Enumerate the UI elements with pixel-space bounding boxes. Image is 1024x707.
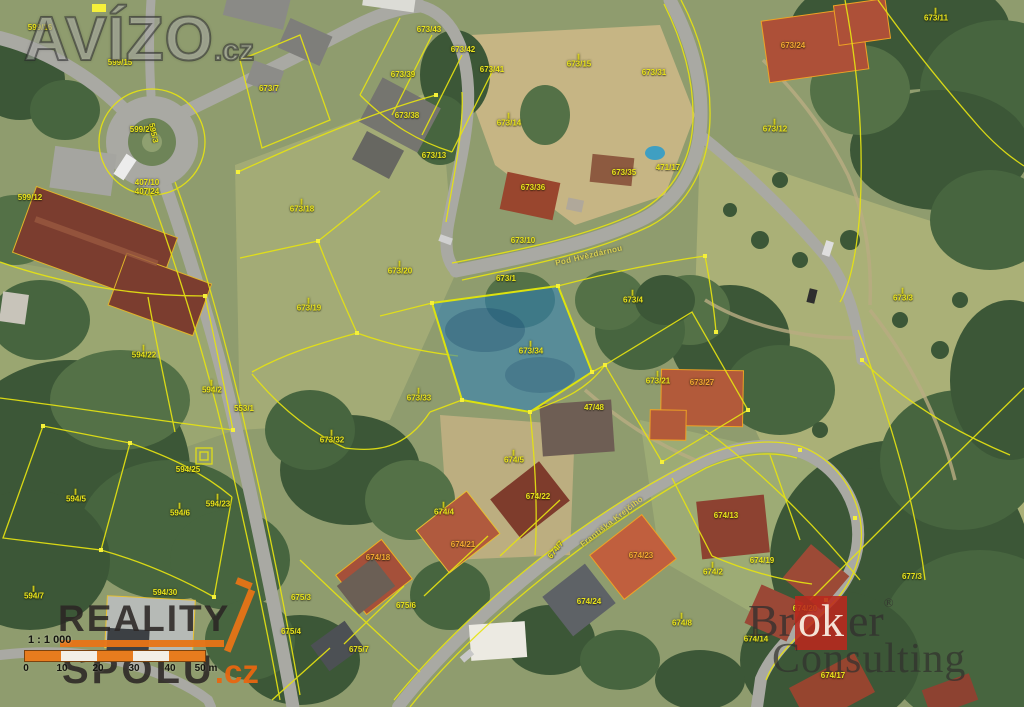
- parcel-label: ∥673/21: [646, 373, 670, 386]
- parcel-label: ∥594/5: [66, 491, 86, 504]
- parcel-label: 674/22: [526, 493, 550, 501]
- parcel-label: ∥674/2: [703, 564, 723, 577]
- parcel-label: 674/18: [366, 554, 390, 562]
- parcel-label: ∥673/34: [519, 343, 543, 356]
- parcel-label: ∥673/20: [388, 263, 412, 276]
- watermark-avizo: AVÍZO.cz: [24, 10, 254, 81]
- parcel-label: 407/24: [135, 188, 159, 196]
- parcel-label: ∥673/18: [290, 201, 314, 214]
- parcel-label: ∥594/6: [170, 505, 190, 518]
- parcel-label: ∥673/4: [623, 292, 643, 305]
- parcel-label: ∥673/14: [497, 115, 521, 128]
- parcel-label: ∥673/33: [407, 390, 431, 403]
- parcel-label: ∥594/22: [132, 347, 156, 360]
- parcel-label: 673/35: [612, 169, 636, 177]
- parcel-label: 47/48: [584, 404, 604, 412]
- parcel-label: 595/3: [147, 122, 159, 143]
- parcel-label: ∥673/15: [567, 56, 591, 69]
- parcel-label: 674/23: [629, 552, 653, 560]
- scale-tick: 20: [92, 663, 103, 674]
- parcel-label: 673/42: [451, 46, 475, 54]
- scale-tick: 0: [23, 663, 29, 674]
- scale-segment: [169, 651, 205, 661]
- parcel-label: 673/31: [642, 69, 666, 77]
- scale-segment: [133, 651, 169, 661]
- parcel-label: 407/10: [135, 179, 159, 187]
- parcel-label: 594/25: [176, 466, 200, 474]
- parcel-label: 675/7: [349, 646, 369, 654]
- parcel-label: 594/30: [153, 589, 177, 597]
- registered-mark: ®: [884, 595, 894, 610]
- parcel-label: ∥673/12: [763, 121, 787, 134]
- parcel-label: 673/36: [521, 184, 545, 192]
- scale-tick: 40: [164, 663, 175, 674]
- scale-ratio-text: 1 : 1 000: [28, 634, 234, 646]
- street-label: Pod Hvězdárnou: [555, 244, 624, 267]
- parcel-label: 673/43: [417, 26, 441, 34]
- parcel-label: 675/3: [291, 594, 311, 602]
- parcel-label: 674/19: [750, 557, 774, 565]
- parcel-label: 673/39: [391, 71, 415, 79]
- watermark-broker-consulting: Broker® Consulting: [748, 596, 894, 650]
- parcel-label: 471/17: [656, 164, 680, 172]
- parcel-label: 677/3: [902, 573, 922, 581]
- parcel-label: 674/24: [577, 598, 601, 606]
- scale-segment: [97, 651, 133, 661]
- parcel-label: 675/4: [281, 628, 301, 636]
- parcel-label: ∥673/32: [320, 432, 344, 445]
- parcel-label: 673/10: [511, 237, 535, 245]
- parcel-label: 675/6: [396, 602, 416, 610]
- parcel-label: 674/7: [547, 540, 566, 561]
- parcel-label: 673/38: [395, 112, 419, 120]
- parcel-label: ∥674/4: [434, 504, 454, 517]
- parcel-label: 673/27: [690, 379, 714, 387]
- scale-tick: 30: [128, 663, 139, 674]
- watermark-reality-spolu: REALITY SPOLU.cz: [58, 600, 230, 637]
- parcel-label: ∥594/7: [24, 588, 44, 601]
- aerial-map-screenshot: 599/16599/15599/12599/26407/10407/24595/…: [0, 0, 1024, 707]
- scale-tick: 10: [56, 663, 67, 674]
- scale-tick-labels: 01020304050 m: [24, 663, 234, 675]
- street-label: Františka Krejčího: [579, 495, 645, 549]
- scale-segment: [25, 651, 61, 661]
- parcel-label: 673/24: [781, 42, 805, 50]
- parcel-label: ∥673/11: [924, 10, 948, 23]
- parcel-label: ∥673/3: [893, 290, 913, 303]
- parcel-label: 673/41: [480, 66, 504, 74]
- avizo-text: AVÍZO: [24, 5, 214, 74]
- consulting-text: Consulting: [772, 638, 966, 680]
- parcel-label: ∥674/5: [504, 452, 524, 465]
- parcel-label: 673/13: [422, 152, 446, 160]
- scale-bar-segments: [24, 650, 206, 662]
- reality-text: REALITY: [58, 600, 230, 637]
- scale-segment: [61, 651, 97, 661]
- parcel-label: ∥673/19: [297, 300, 321, 313]
- parcel-label: ∥674/8: [672, 615, 692, 628]
- parcel-label: 673/1: [496, 275, 516, 283]
- parcel-label: 674/21: [451, 541, 475, 549]
- parcel-label: 673/7: [259, 85, 279, 93]
- parcel-label: ∥594/23: [206, 496, 230, 509]
- parcel-label: ∥594/2: [202, 382, 222, 395]
- parcel-label: 553/1: [234, 405, 254, 413]
- scale-tick: 50 m: [195, 663, 218, 674]
- avizo-cz-suffix: .cz: [214, 34, 254, 67]
- parcel-label: 674/13: [714, 512, 738, 520]
- parcel-label: 599/12: [18, 194, 42, 202]
- map-scale-bar: 1 : 1 000 01020304050 m: [24, 634, 234, 675]
